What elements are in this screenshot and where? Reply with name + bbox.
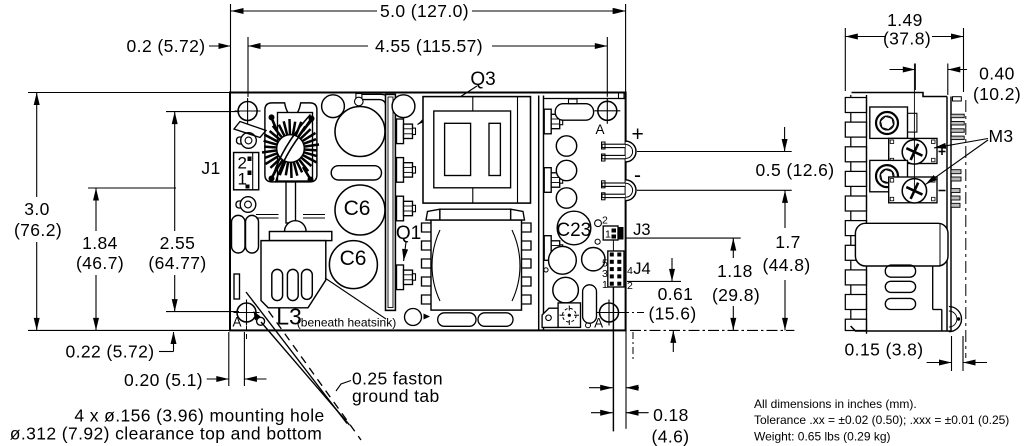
svg-text:Weight: 0.65 lbs (0.29 kg): Weight: 0.65 lbs (0.29 kg) xyxy=(754,430,891,444)
svg-text:4 x ø.156 (3.96) mounting hole: 4 x ø.156 (3.96) mounting hole xyxy=(74,406,324,426)
svg-text:2: 2 xyxy=(602,215,608,227)
svg-text:0.40: 0.40 xyxy=(979,64,1015,84)
svg-text:2.55: 2.55 xyxy=(160,233,196,253)
svg-text:A: A xyxy=(595,122,604,137)
svg-text:All dimensions in inches (mm).: All dimensions in inches (mm). xyxy=(754,397,917,411)
svg-text:Q1: Q1 xyxy=(396,223,421,244)
svg-text:+: + xyxy=(631,123,643,146)
svg-text:(46.7): (46.7) xyxy=(76,253,124,273)
svg-text:5.0 (127.0): 5.0 (127.0) xyxy=(380,1,469,21)
svg-text:4.55 (115.57): 4.55 (115.57) xyxy=(375,36,483,56)
svg-text:(44.8): (44.8) xyxy=(762,255,810,275)
svg-text:0.18: 0.18 xyxy=(653,405,689,425)
svg-text:0.5 (12.6): 0.5 (12.6) xyxy=(756,160,835,180)
svg-text:A: A xyxy=(232,315,241,330)
svg-text:(15.6): (15.6) xyxy=(648,304,696,324)
svg-text:1: 1 xyxy=(602,279,608,291)
svg-text:Tolerance .xx = ±0.02 (0.50);: Tolerance .xx = ±0.02 (0.50); .xxx = ±0.… xyxy=(754,413,1009,427)
svg-text:ø.312 (7.92) clearance top and: ø.312 (7.92) clearance top and bottom xyxy=(10,424,322,444)
svg-text:J4: J4 xyxy=(633,260,650,278)
svg-text:4: 4 xyxy=(627,265,633,277)
svg-text:(4.6): (4.6) xyxy=(652,427,690,446)
svg-text:(64.77): (64.77) xyxy=(148,253,206,273)
svg-text:C6: C6 xyxy=(340,247,367,270)
svg-text:(37.8): (37.8) xyxy=(883,29,931,49)
svg-text:3.0: 3.0 xyxy=(24,199,50,219)
svg-text:M3: M3 xyxy=(988,126,1013,146)
svg-text:1.7: 1.7 xyxy=(775,232,801,252)
svg-text:Q3: Q3 xyxy=(470,69,495,90)
svg-text:ground tab: ground tab xyxy=(352,386,440,406)
svg-text:0.22 (5.72): 0.22 (5.72) xyxy=(65,342,154,362)
svg-text:(76.2): (76.2) xyxy=(14,220,62,240)
svg-text:1: 1 xyxy=(605,229,611,241)
svg-text:0.15 (3.8): 0.15 (3.8) xyxy=(845,340,924,360)
svg-text:0.20 (5.1): 0.20 (5.1) xyxy=(124,370,203,390)
svg-text:(beneath heatsink): (beneath heatsink) xyxy=(297,316,396,330)
svg-text:(29.8): (29.8) xyxy=(712,285,760,305)
svg-text:1.84: 1.84 xyxy=(82,233,118,253)
svg-text:C23: C23 xyxy=(556,220,591,241)
svg-text:J1: J1 xyxy=(201,158,220,178)
svg-text:0.2 (5.72): 0.2 (5.72) xyxy=(127,36,206,56)
svg-text:(10.2): (10.2) xyxy=(973,84,1021,104)
svg-text:1.18: 1.18 xyxy=(717,261,753,281)
svg-text:C6: C6 xyxy=(344,197,371,220)
svg-text:-: - xyxy=(634,164,641,187)
svg-text:0.61: 0.61 xyxy=(658,284,694,304)
svg-text:J3: J3 xyxy=(633,221,650,239)
svg-text:1.49: 1.49 xyxy=(887,10,923,30)
